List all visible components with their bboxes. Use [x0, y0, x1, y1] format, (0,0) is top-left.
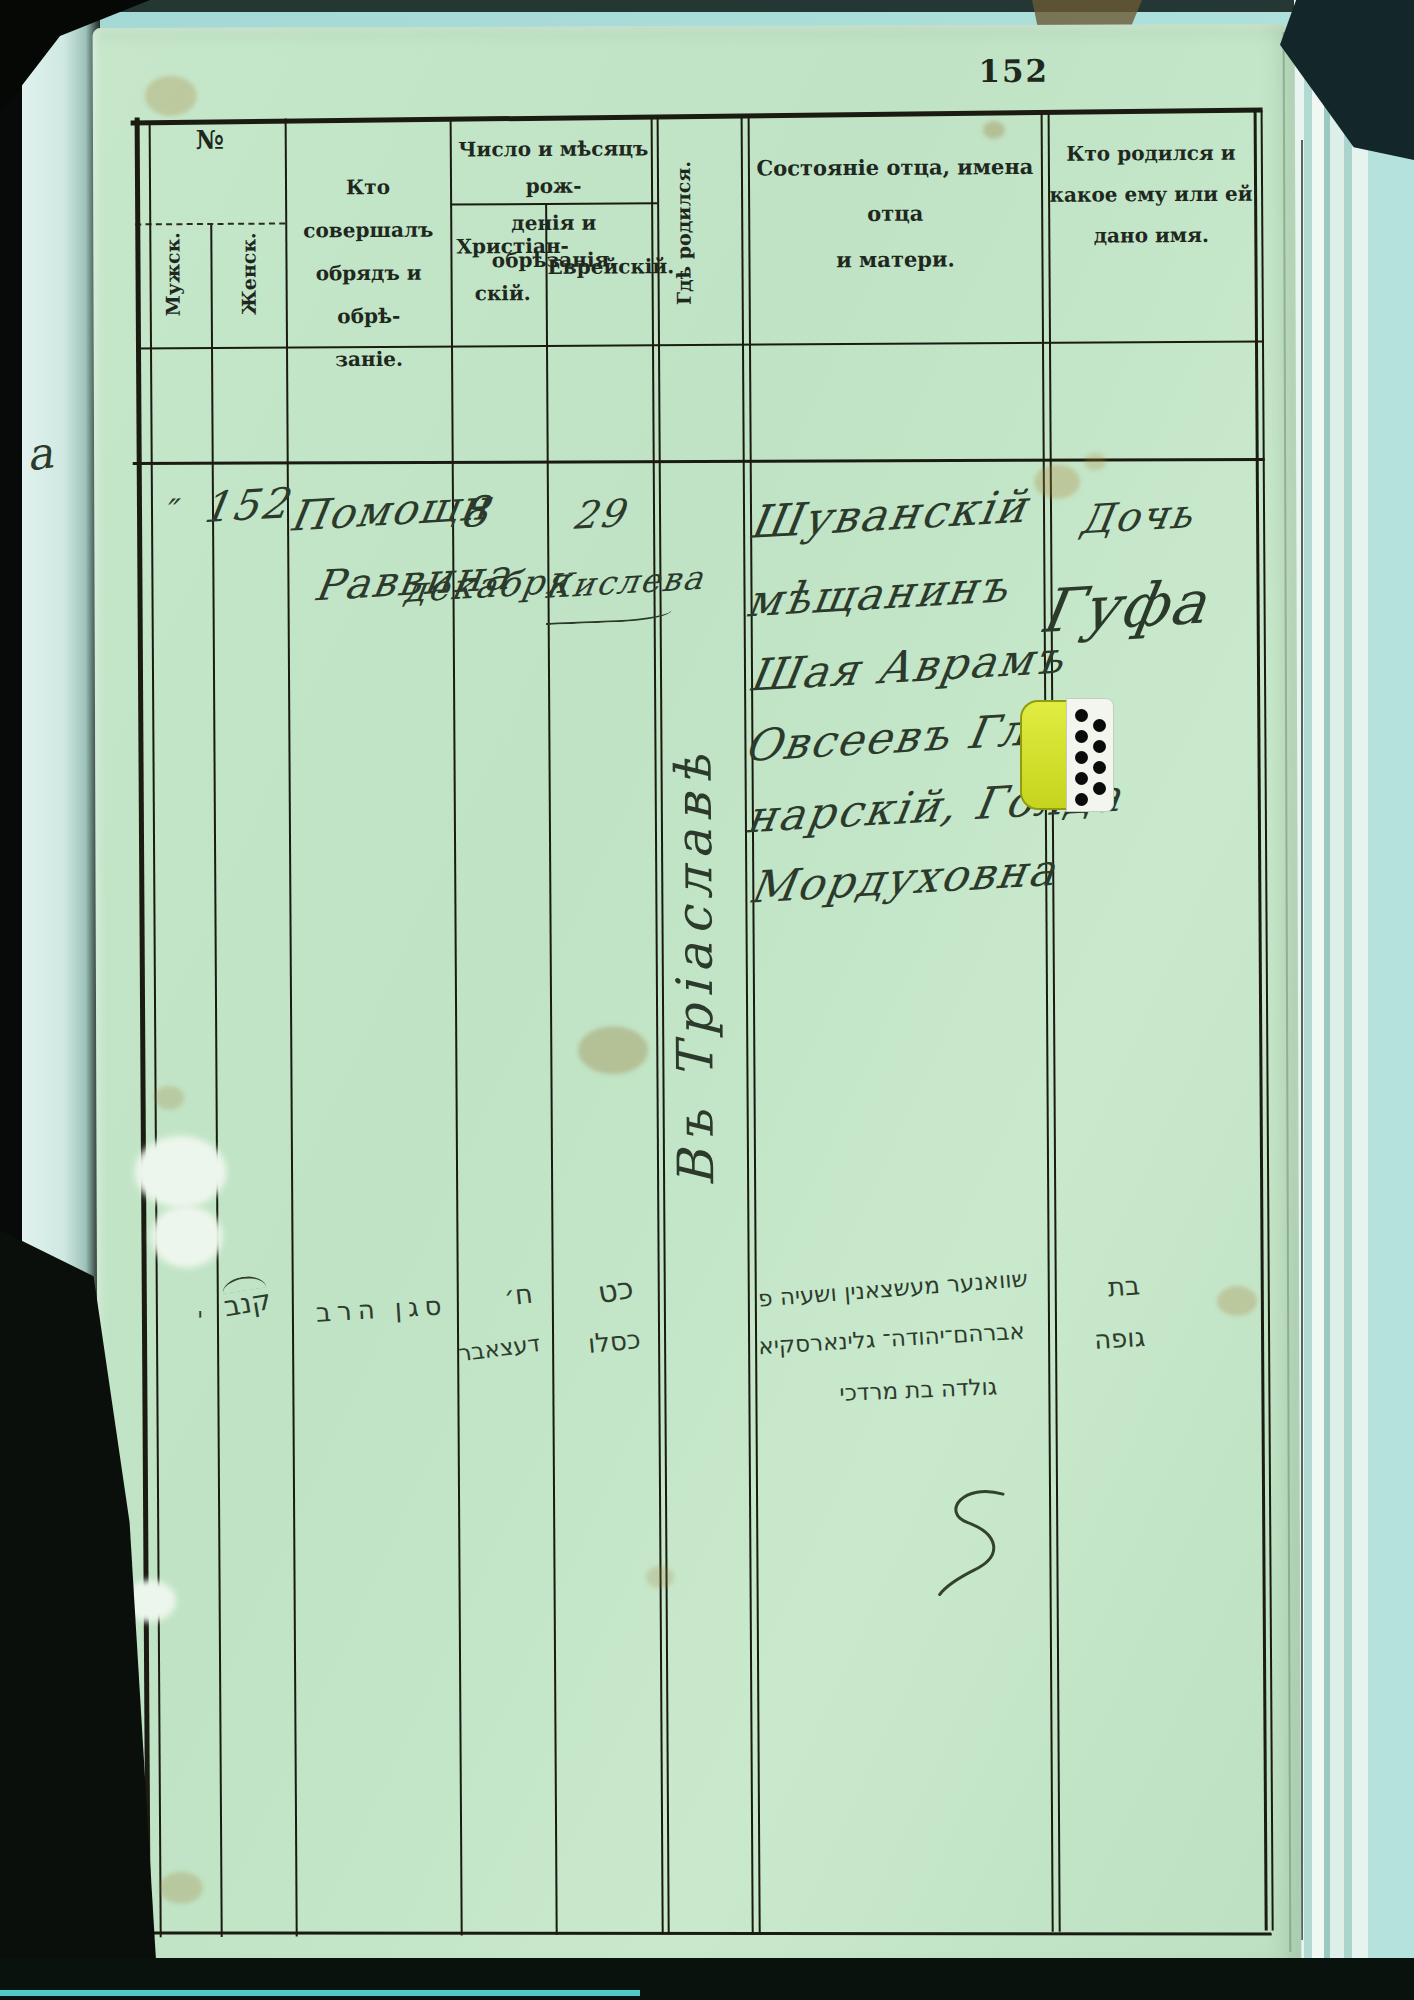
- punch-hole-dot: [1093, 719, 1106, 732]
- col-header-father: Состояніе отца, имена отца и матери.: [747, 144, 1044, 284]
- punch-hole-dot: [1075, 751, 1088, 764]
- record-number: 152: [199, 478, 294, 532]
- hebrew-record-number: קנב: [221, 1283, 273, 1323]
- bookmark-tab[interactable]: [1020, 700, 1070, 810]
- foxing-stain: [578, 1026, 648, 1074]
- punch-hole-dot: [1075, 793, 1088, 806]
- col-header-male: Мужск.: [161, 229, 184, 319]
- bookmark-tab-holes: [1066, 698, 1114, 812]
- hebrew-child-line1: בת: [1107, 1270, 1141, 1302]
- punch-hole-dot: [1093, 782, 1106, 795]
- record-father-line3: Шая Аврамъ: [746, 632, 1070, 701]
- officiant-dates-divider: [450, 117, 463, 1935]
- col-header-female: Женск.: [237, 229, 260, 319]
- record-jewish-month: Кислева: [542, 558, 708, 606]
- foxing-stain: [1084, 453, 1106, 471]
- hebrew-father-line1: שוואנער מעשצאנין ושעיה פ: [757, 1264, 1046, 1312]
- record-father-line6: Мордуховна: [746, 844, 1061, 913]
- record-jewish-day: 29: [569, 491, 629, 538]
- left-inner-rule: [149, 121, 162, 1937]
- table-top-border: [131, 108, 1263, 126]
- foxing-stain: [1034, 465, 1080, 499]
- book-page-stack-edge: [1294, 0, 1414, 2000]
- col-header-child: Кто родился и какое ему или ей дано имя.: [1047, 133, 1256, 257]
- punch-hole-dot: [1075, 730, 1088, 743]
- scanned-register-page: а 152: [0, 0, 1414, 2000]
- flourish-mark: [933, 1486, 1018, 1599]
- col-header-number: №: [180, 125, 240, 155]
- col-header-birthplace: Гдѣ родился.: [672, 158, 695, 308]
- punch-hole-dot: [1075, 772, 1088, 785]
- hebrew-christian-month: דעצאבר: [457, 1330, 542, 1366]
- record-male-ditto-mark: ″: [163, 491, 178, 531]
- father-child-divider-a: [1041, 114, 1054, 1932]
- scan-top-edge: [0, 0, 1414, 12]
- hebrew-christian-day: ח׳: [502, 1278, 534, 1312]
- col-header-christian: Христіан- скій.: [452, 223, 549, 318]
- record-christian-day: 8: [457, 487, 494, 538]
- hebrew-jewish-day: כט: [595, 1270, 636, 1310]
- scan-bottom-highlight: [0, 1990, 640, 1996]
- table-bottom-border: [146, 1931, 1272, 1935]
- record-father-line2: мѣщанинъ: [743, 560, 1013, 626]
- hebrew-father-line3: גולדה בת מרדכי: [798, 1372, 1039, 1408]
- foxing-stain: [154, 1086, 184, 1110]
- foxing-stain: [646, 1566, 674, 1588]
- record-child-name: Гуфа: [1035, 567, 1213, 647]
- hebrew-officiant: סגן הרב: [315, 1290, 448, 1328]
- record-father-line1: Шуванскій: [746, 480, 1032, 549]
- table: № Мужск. Женск. Кто совершалъ обрядъ и о…: [90, 22, 1304, 1977]
- foxing-stain: [159, 1872, 203, 1904]
- punch-hole-dot: [1093, 740, 1106, 753]
- number-officiant-divider: [285, 118, 298, 1936]
- punch-hole-dot: [1075, 709, 1088, 722]
- hebrew-father-line2: אברהם־יהודה־ גלינארסקיא: [758, 1316, 1047, 1359]
- hebrew-male-mark: י: [198, 1303, 203, 1327]
- punch-hole-dot: [1093, 761, 1106, 774]
- register-page: 152 № Мужск.: [93, 24, 1302, 1976]
- paper-damage-patch: [134, 1136, 226, 1208]
- col-header-jewish: Еврейскій.: [547, 254, 653, 279]
- hebrew-child-name: גופה: [1093, 1322, 1146, 1355]
- record-birthplace-vertical: Въ Тріаславѣ: [664, 622, 754, 1313]
- hebrew-jewish-month: כסלו: [587, 1324, 642, 1359]
- foxing-stain: [145, 76, 197, 116]
- col-header-officiant: Кто совершалъ обрядъ и обрѣ- заніе.: [288, 166, 449, 382]
- foxing-stain: [1217, 1286, 1257, 1316]
- paper-damage-patch: [151, 1206, 223, 1268]
- record-child-line1: Дочь: [1077, 490, 1198, 543]
- foxing-stain: [983, 121, 1005, 139]
